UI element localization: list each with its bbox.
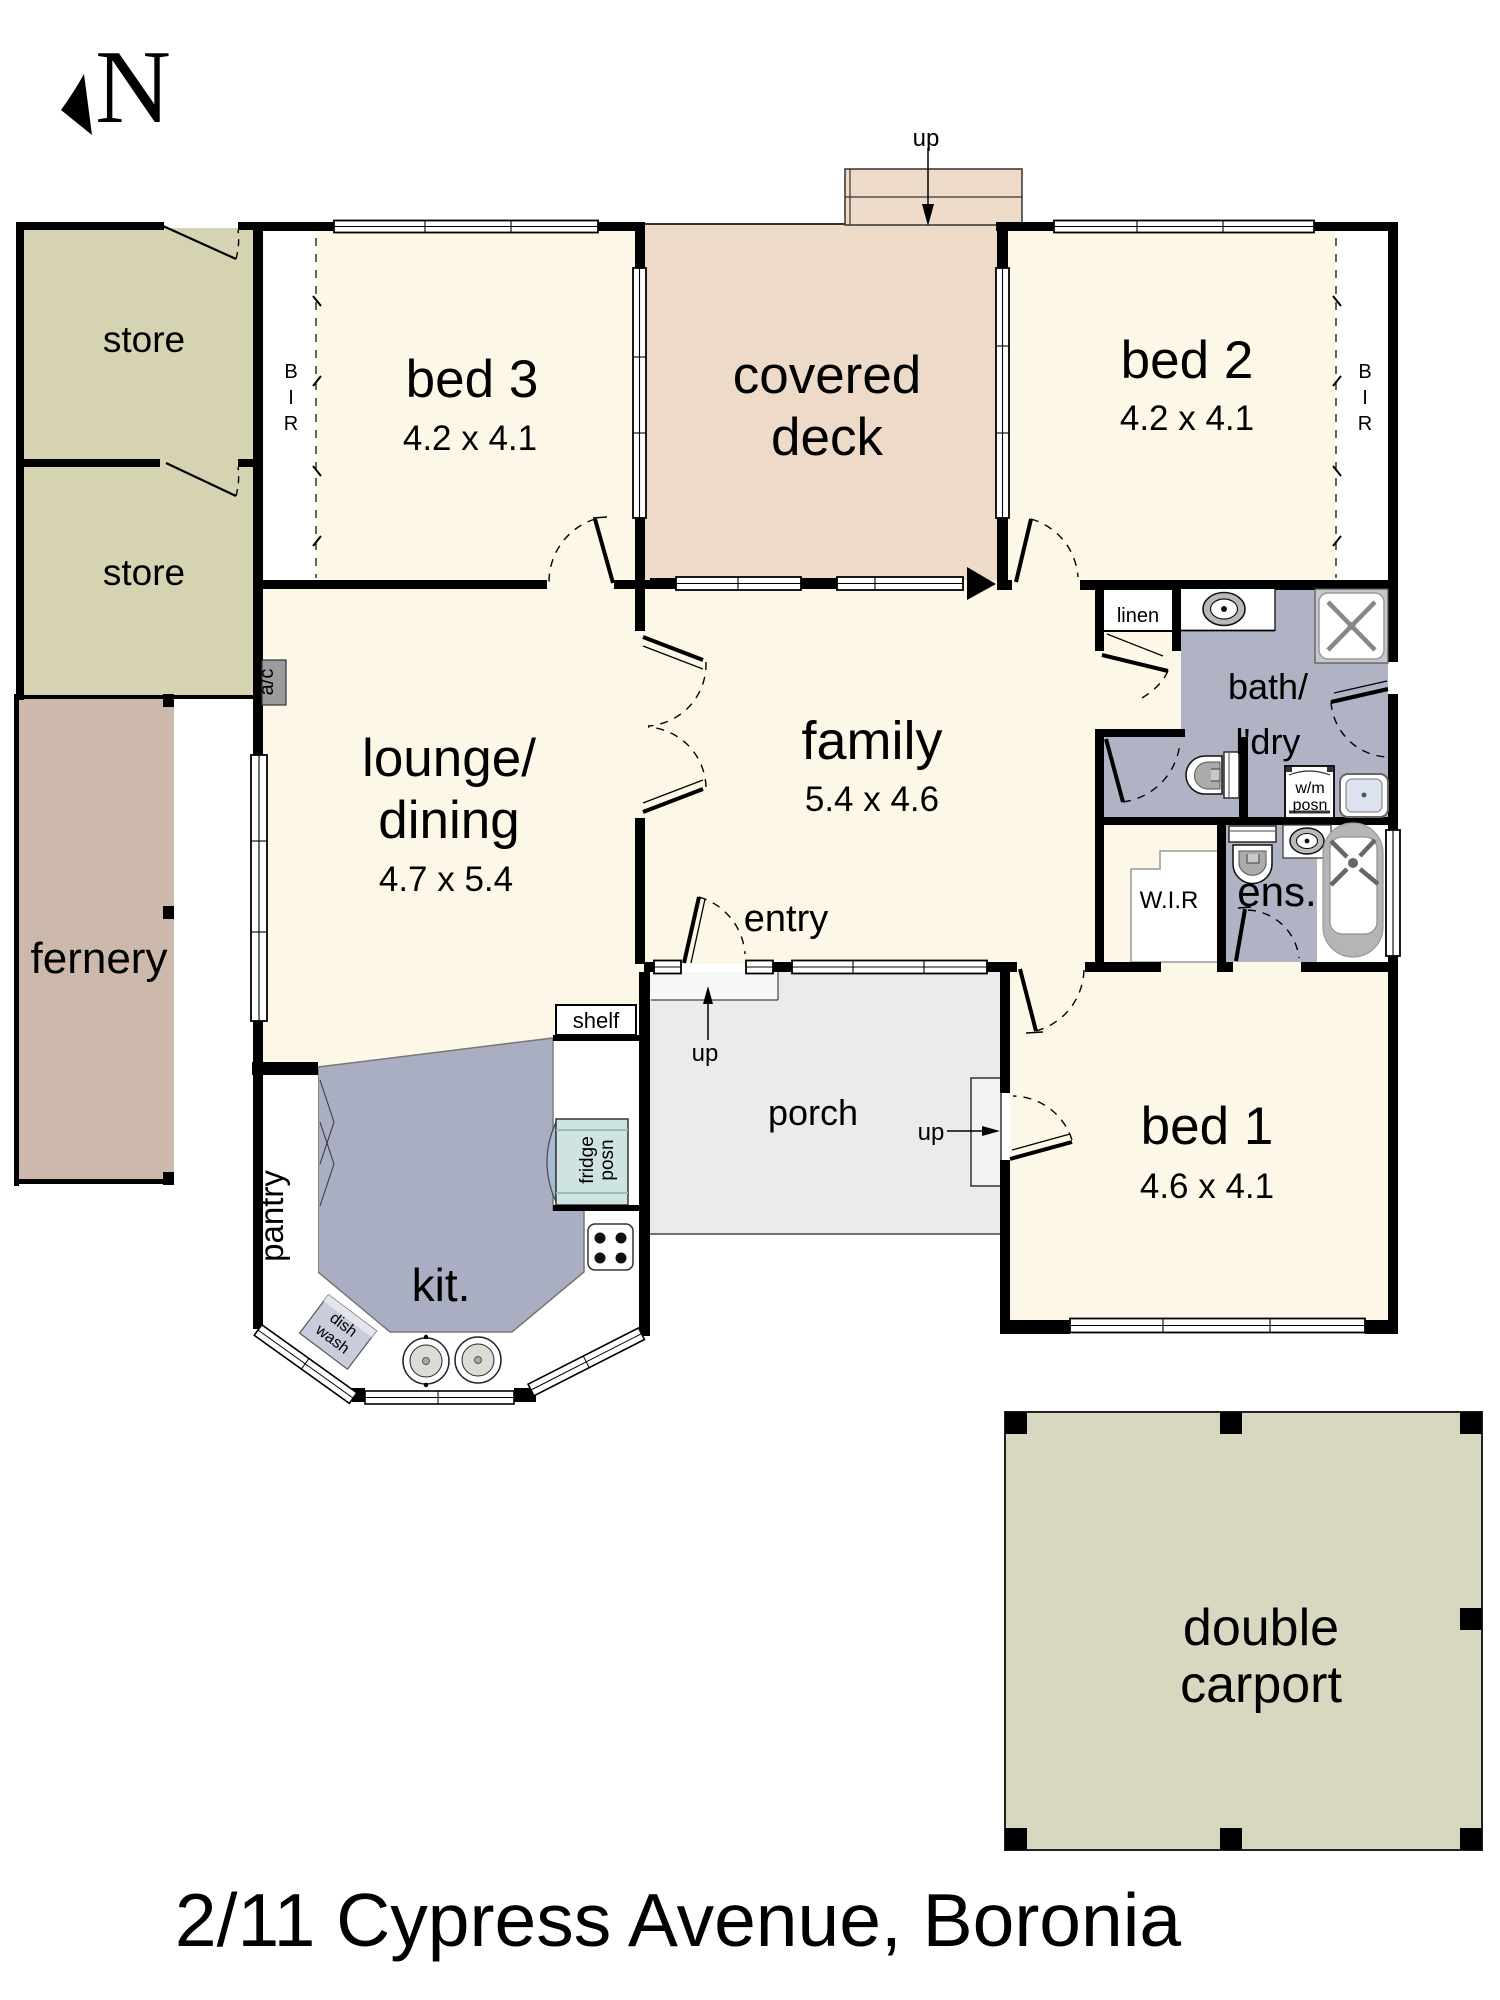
svg-text:w/m: w/m <box>1294 780 1324 797</box>
svg-text:B: B <box>1358 361 1371 383</box>
svg-text:N: N <box>95 28 171 145</box>
svg-text:double: double <box>1183 1599 1339 1657</box>
svg-text:5.4 x 4.6: 5.4 x 4.6 <box>805 780 939 819</box>
svg-text:carport: carport <box>1180 1656 1342 1714</box>
svg-text:store: store <box>103 319 185 360</box>
svg-text:4.2 x 4.1: 4.2 x 4.1 <box>1120 399 1254 438</box>
svg-text:dining: dining <box>378 791 519 850</box>
svg-text:pantry: pantry <box>253 1170 290 1262</box>
svg-text:posn: posn <box>597 1139 618 1180</box>
svg-text:R: R <box>1358 413 1372 435</box>
svg-text:up: up <box>913 125 940 152</box>
svg-text:ens.: ens. <box>1237 868 1316 915</box>
svg-text:bed 2: bed 2 <box>1121 331 1254 390</box>
svg-text:lounge/: lounge/ <box>362 729 536 788</box>
svg-text:a/c: a/c <box>256 669 278 696</box>
svg-text:fridge: fridge <box>577 1136 598 1184</box>
svg-text:store: store <box>103 552 185 593</box>
svg-text:deck: deck <box>771 408 883 467</box>
svg-text:4.6 x 4.1: 4.6 x 4.1 <box>1140 1167 1274 1206</box>
svg-text:bed 1: bed 1 <box>1141 1097 1274 1156</box>
svg-text:2/11 Cypress Avenue, Boronia: 2/11 Cypress Avenue, Boronia <box>175 1878 1181 1962</box>
svg-text:kit.: kit. <box>412 1259 471 1311</box>
svg-text:bed 3: bed 3 <box>406 350 539 409</box>
svg-text:shelf: shelf <box>573 1008 620 1033</box>
svg-text:4.7 x 5.4: 4.7 x 5.4 <box>379 860 513 899</box>
svg-text:porch: porch <box>768 1092 858 1133</box>
svg-text:posn: posn <box>1293 797 1328 814</box>
svg-text:B: B <box>284 361 297 383</box>
svg-text:4.2 x 4.1: 4.2 x 4.1 <box>403 419 537 458</box>
svg-text:bath/: bath/ <box>1228 666 1308 707</box>
svg-text:l'dry: l'dry <box>1236 721 1301 762</box>
svg-text:family: family <box>801 711 942 771</box>
svg-text:entry: entry <box>744 898 828 940</box>
svg-text:I: I <box>288 387 294 409</box>
svg-text:covered: covered <box>733 346 922 405</box>
svg-text:fernery: fernery <box>31 934 168 983</box>
svg-text:W.I.R: W.I.R <box>1140 887 1199 914</box>
svg-text:R: R <box>284 413 298 435</box>
svg-text:up: up <box>918 1119 945 1146</box>
svg-text:I: I <box>1362 387 1368 409</box>
svg-text:up: up <box>692 1040 719 1067</box>
svg-text:linen: linen <box>1117 605 1159 627</box>
